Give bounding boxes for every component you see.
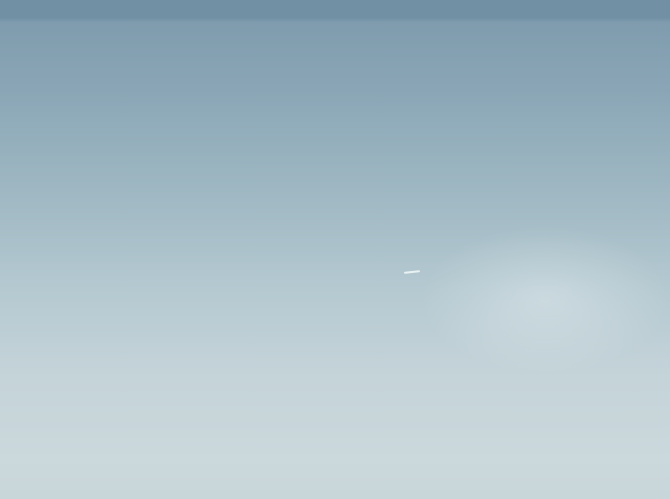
cloud-patch [420,225,670,375]
architectural-elevation-rendering [0,0,670,499]
